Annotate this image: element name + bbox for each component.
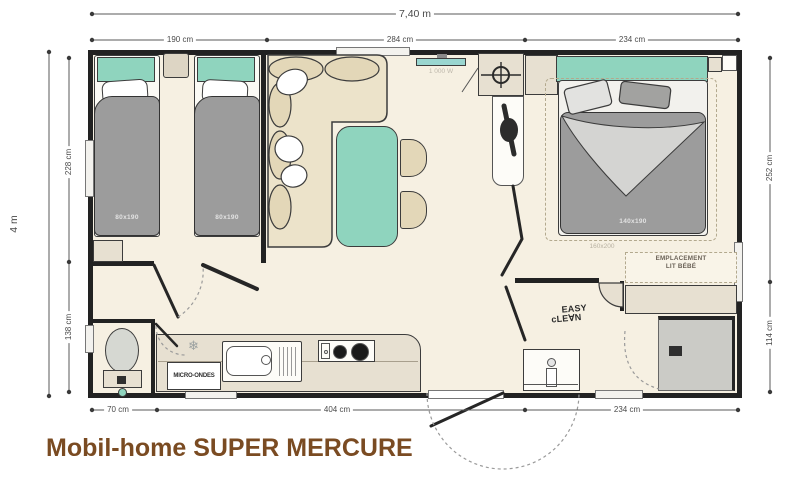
window-top — [336, 47, 410, 56]
stove — [318, 340, 375, 362]
dim-left-2: 138 cm — [64, 311, 74, 343]
shower-tray — [658, 316, 735, 391]
heater-power-label: 1 000 W — [429, 67, 453, 77]
dim-right-2: 114 cm — [765, 317, 775, 349]
window-left-bedroom — [85, 140, 94, 197]
window-left-wc — [85, 325, 94, 353]
wall-bath-jamb — [620, 281, 624, 311]
entrance-door-opening — [428, 390, 504, 399]
dim-bottom-1: 70 cm — [104, 405, 132, 415]
dim-bottom-3: 234 cm — [611, 405, 643, 415]
sink-drainer — [279, 347, 298, 376]
fridge-snowflake-icon: ❄ — [188, 338, 199, 354]
microwave-box: MICRO-ONDES — [167, 362, 221, 390]
master-dressing-shelf — [492, 96, 524, 186]
window-bottom-bath — [595, 390, 643, 399]
floorplan-page: 80x190 80x190 140x190 MICRO-ONDES ❄ — [0, 0, 800, 480]
stove-burner-small — [333, 345, 347, 359]
shower-drain — [669, 346, 682, 356]
twin-bed-1-size-label: 80x190 — [95, 214, 159, 221]
stove-burner-large — [351, 343, 369, 361]
wall-heater — [416, 58, 466, 66]
baby-bed-label-line2: LIT BÉBÉ — [625, 263, 737, 271]
master-bed-duvet: 140x190 — [560, 112, 706, 234]
twin-bed-2-duvet: 80x190 — [194, 96, 260, 236]
wall-wc-east — [151, 319, 155, 393]
dim-left-1: 228 cm — [64, 146, 74, 178]
twin-bed-2-size-label: 80x190 — [195, 214, 259, 221]
bench-right — [625, 285, 737, 314]
dim-bottom-2: 404 cm — [321, 405, 353, 415]
sink-tap — [261, 355, 271, 365]
washbasin-base — [524, 384, 578, 385]
bedside-shelf — [163, 53, 189, 78]
microwave-label: MICRO-ONDES — [173, 373, 214, 379]
stove-control — [321, 343, 330, 359]
dim-overall-height: 4 m — [9, 212, 19, 236]
easy-clean-logo: EASY cLE∀N — [550, 303, 588, 324]
floor-dot — [118, 388, 127, 397]
dim-top-2: 284 cm — [384, 35, 416, 45]
master-block-right-2 — [722, 55, 737, 71]
baby-bed-label-line1: EMPLACEMENT — [625, 255, 737, 263]
toilet-button — [117, 376, 126, 384]
twin-bed-1-headboard — [97, 57, 155, 82]
master-bed-option-label: 160x200 — [590, 242, 615, 252]
dim-right-1: 252 cm — [765, 152, 775, 184]
wall-master-south — [515, 278, 599, 283]
master-block-right — [708, 57, 722, 72]
baby-bed-label: EMPLACEMENT LIT BÉBÉ — [625, 255, 737, 271]
dim-top-1: 190 cm — [164, 35, 196, 45]
master-wardrobe — [478, 53, 524, 96]
washbasin-tap — [547, 358, 556, 367]
washbasin — [523, 349, 580, 391]
twin-bed-1-duvet: 80x190 — [94, 96, 160, 236]
wall-bedroom-east — [261, 53, 266, 263]
bedroom-cabinet — [93, 240, 123, 262]
kitchen-sink — [222, 341, 302, 382]
dining-table — [336, 126, 398, 247]
toilet-bowl — [105, 328, 139, 373]
page-title: Mobil-home SUPER MERCURE — [46, 434, 413, 463]
master-bed-size-label: 140x190 — [561, 218, 705, 225]
dim-overall-width: 7,40 m — [396, 9, 434, 19]
twin-bed-2-headboard — [197, 57, 255, 82]
dim-top-3: 234 cm — [616, 35, 648, 45]
wall-wc-top — [93, 319, 152, 323]
